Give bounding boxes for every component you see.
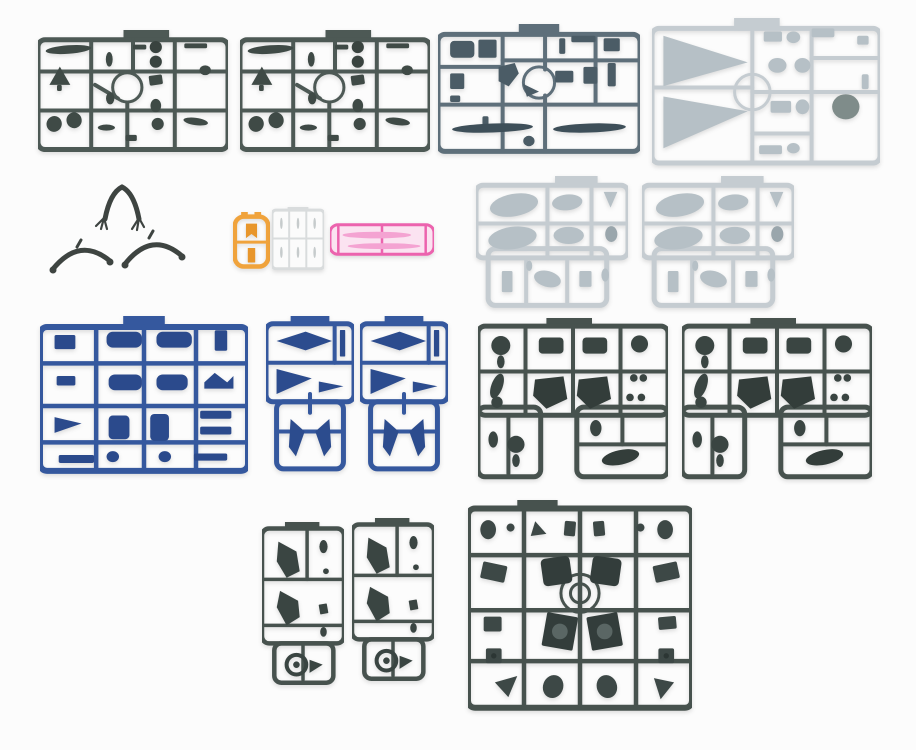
molded-part [247, 44, 293, 56]
molded-part [491, 336, 510, 355]
molded-part [716, 454, 724, 467]
molded-part [367, 587, 390, 621]
molded-part [125, 135, 136, 141]
molded-part [488, 190, 540, 221]
molded-part [692, 431, 702, 447]
molded-part [413, 564, 419, 570]
molded-part [45, 44, 91, 56]
molded-part [571, 36, 595, 43]
sprue-darkgray-runner-square [468, 500, 692, 712]
molded-part [409, 599, 419, 610]
molded-part [695, 336, 714, 355]
molded-part [57, 85, 62, 91]
molded-part [352, 116, 368, 132]
molded-part [156, 374, 187, 390]
sprue-dark-runner-2 [240, 30, 430, 152]
sprue-darkgray-runner-notched-2 [682, 318, 872, 480]
molded-part [149, 74, 164, 86]
molded-part [484, 617, 502, 632]
molded-part [830, 394, 838, 402]
molded-part [450, 96, 460, 103]
molded-part [133, 45, 146, 50]
molded-part [593, 672, 620, 701]
molded-part [495, 676, 517, 697]
molded-part [626, 394, 634, 402]
molded-part [787, 337, 812, 353]
molded-part [150, 56, 162, 68]
loose-part [96, 218, 107, 229]
molded-part [787, 31, 801, 43]
molded-part [327, 135, 338, 141]
molded-part [590, 420, 601, 436]
molded-part [267, 111, 286, 130]
molded-part [553, 122, 626, 134]
molded-part [183, 116, 208, 127]
molded-part [297, 218, 300, 229]
molded-part [478, 40, 496, 58]
molded-part [491, 653, 496, 658]
molded-part [156, 332, 191, 348]
sprue-orange-runner-small [233, 212, 270, 270]
loose-part [149, 231, 153, 238]
sprue-clear-pink-runner [330, 221, 434, 258]
molded-part [698, 268, 729, 290]
molded-part [348, 243, 421, 249]
molded-part [695, 397, 706, 408]
molded-part [691, 372, 711, 400]
molded-part [663, 36, 747, 86]
molded-part [293, 661, 300, 668]
molded-part [107, 451, 119, 462]
molded-part [764, 31, 782, 41]
molded-part [386, 43, 409, 48]
molded-part [717, 193, 749, 212]
model-kit-runners-photo [0, 0, 916, 750]
molded-part [313, 218, 316, 229]
molded-part [277, 369, 312, 394]
molded-part [215, 330, 227, 351]
molded-part [400, 656, 413, 669]
molded-part [600, 446, 640, 468]
molded-part [319, 382, 344, 393]
molded-part [523, 84, 539, 97]
molded-part [551, 193, 583, 212]
molded-part [450, 41, 474, 58]
molded-part [150, 99, 161, 112]
loose-part [122, 262, 129, 269]
molded-part [280, 218, 283, 229]
molded-part [57, 376, 76, 385]
molded-part [579, 271, 591, 287]
molded-part [539, 337, 564, 353]
molded-part [352, 99, 363, 112]
sprue-blue-runner-large [40, 316, 248, 474]
molded-part [409, 419, 425, 456]
molded-part [383, 419, 399, 456]
molded-part [383, 657, 390, 664]
molded-part [246, 114, 265, 134]
molded-part [280, 247, 283, 258]
molded-part [692, 260, 698, 271]
molded-part [552, 624, 568, 640]
molded-part [668, 271, 679, 292]
molded-part [371, 369, 406, 394]
molded-part [150, 414, 169, 441]
molded-part [150, 116, 166, 132]
molded-part [159, 451, 171, 462]
molded-part [834, 374, 842, 382]
molded-part [804, 446, 844, 468]
molded-part [654, 678, 674, 699]
molded-part [794, 420, 805, 436]
molded-part [502, 271, 513, 292]
molded-part [385, 116, 410, 127]
molded-part [44, 114, 63, 134]
loose-part [107, 259, 114, 266]
molded-part [532, 268, 563, 290]
molded-part [413, 382, 438, 393]
molded-part [737, 376, 771, 408]
molded-part [308, 92, 316, 104]
molded-part [608, 63, 616, 86]
molded-part [577, 376, 611, 408]
loose-part [77, 240, 81, 247]
molded-part [200, 65, 211, 75]
molded-part [150, 41, 162, 53]
molded-part [842, 394, 850, 402]
sprue-darkgray-runner-notched-1 [478, 318, 668, 480]
molded-part [583, 67, 597, 84]
molded-part [862, 74, 869, 89]
molded-part [605, 226, 617, 242]
molded-part [184, 43, 207, 48]
molded-part [335, 45, 348, 50]
molded-part [289, 419, 305, 456]
molded-part [410, 623, 417, 633]
loose-part [125, 245, 182, 264]
molded-part [55, 417, 82, 433]
molded-part [371, 332, 426, 351]
molded-part [604, 192, 618, 208]
molded-part [313, 247, 316, 258]
molded-part [310, 660, 323, 673]
molded-part [583, 337, 608, 353]
molded-part [526, 260, 532, 271]
sprue-lightgray-runner-large [652, 18, 880, 166]
molded-part [251, 67, 272, 85]
molded-part [835, 335, 852, 352]
molded-part [540, 555, 573, 586]
molded-part [657, 520, 673, 539]
molded-part [488, 431, 498, 447]
molded-part [323, 568, 329, 574]
molded-part [277, 542, 300, 578]
molded-part [491, 397, 502, 408]
molded-part [109, 416, 130, 440]
molded-part [352, 41, 364, 53]
molded-part [743, 337, 768, 353]
molded-part [554, 227, 584, 244]
loose-part [179, 254, 186, 261]
molded-part [559, 38, 565, 54]
molded-part [832, 94, 859, 119]
molded-part [55, 335, 76, 349]
molded-part [523, 136, 534, 146]
molded-part [771, 226, 783, 242]
molded-part [533, 376, 567, 408]
molded-part [663, 96, 747, 148]
molded-part [664, 653, 669, 658]
molded-part [315, 419, 331, 456]
molded-part [770, 192, 784, 208]
molded-part [480, 561, 508, 583]
molded-part [507, 524, 515, 532]
molded-part [654, 190, 706, 221]
molded-part [49, 67, 70, 85]
molded-part [204, 373, 233, 389]
molded-part [604, 38, 620, 51]
molded-part [771, 101, 792, 113]
molded-part [65, 111, 84, 130]
molded-part [320, 627, 327, 637]
molded-part [297, 247, 300, 258]
molded-part [450, 73, 464, 89]
molded-part [507, 436, 524, 453]
molded-part [367, 538, 390, 574]
molded-part [781, 376, 815, 408]
loose-part [132, 218, 144, 230]
molded-part [767, 268, 775, 281]
molded-part [480, 520, 496, 539]
molded-part [59, 455, 94, 463]
molded-part [409, 536, 417, 549]
sprue-darkgray-runner-tall-2 [352, 518, 434, 682]
molded-part [434, 330, 439, 357]
molded-part [768, 58, 786, 73]
molded-part [564, 521, 576, 537]
molded-part [597, 624, 613, 640]
sprue-lightgray-runner-small-1 [476, 176, 628, 308]
molded-part [711, 436, 728, 453]
molded-part [106, 92, 114, 104]
molded-part [658, 616, 677, 630]
molded-part [319, 603, 329, 614]
loose-part [50, 267, 57, 274]
molded-part [844, 374, 852, 382]
molded-part [540, 672, 567, 701]
molded-part [259, 85, 264, 91]
sprue-darkgray-runner-tall-1 [262, 522, 344, 686]
molded-part [452, 122, 533, 134]
molded-part [246, 224, 257, 239]
sprue-white-runner-small [272, 207, 324, 270]
molded-part [795, 58, 811, 73]
molded-part [701, 355, 709, 368]
sprue-lightgray-runner-small-2 [642, 176, 794, 308]
molded-part [857, 36, 868, 45]
molded-part [351, 74, 366, 86]
sprue-dark-runner-1 [38, 30, 228, 152]
molded-part [342, 232, 411, 239]
molded-part [308, 52, 315, 67]
molded-part [352, 56, 364, 68]
molded-part [531, 521, 547, 536]
molded-part [340, 330, 345, 357]
molded-part [107, 332, 142, 348]
molded-part [194, 453, 227, 460]
molded-part [248, 248, 255, 263]
molded-part [589, 555, 622, 586]
molded-part [497, 355, 505, 368]
molded-part [601, 268, 609, 281]
molded-part [512, 454, 520, 467]
sprue-blue-runner-small-1 [266, 316, 354, 472]
molded-part [593, 521, 605, 537]
molded-part [300, 125, 317, 131]
loose-part [53, 250, 110, 269]
molded-part [759, 145, 782, 154]
molded-part [319, 540, 327, 553]
molded-part [109, 374, 142, 390]
molded-part [796, 99, 810, 114]
molded-part [200, 411, 231, 419]
molded-part [487, 372, 507, 400]
molded-part [812, 28, 835, 37]
molded-part [720, 227, 750, 244]
molded-part [200, 427, 231, 435]
molded-part [787, 143, 800, 153]
molded-part [745, 271, 757, 287]
molded-part [638, 394, 646, 402]
molded-part [630, 374, 638, 382]
molded-part [277, 591, 300, 625]
molded-part [631, 335, 648, 352]
molded-part [106, 52, 113, 67]
molded-part [277, 332, 332, 351]
molded-part [402, 65, 413, 75]
molded-part [636, 524, 644, 532]
loose-part [105, 187, 139, 219]
molded-part [652, 561, 680, 583]
molded-part [640, 374, 648, 382]
sprue-bluegray-runner [438, 24, 640, 154]
molded-part [555, 71, 573, 83]
sprue-blue-runner-small-2 [360, 316, 448, 472]
molded-part [98, 125, 115, 131]
